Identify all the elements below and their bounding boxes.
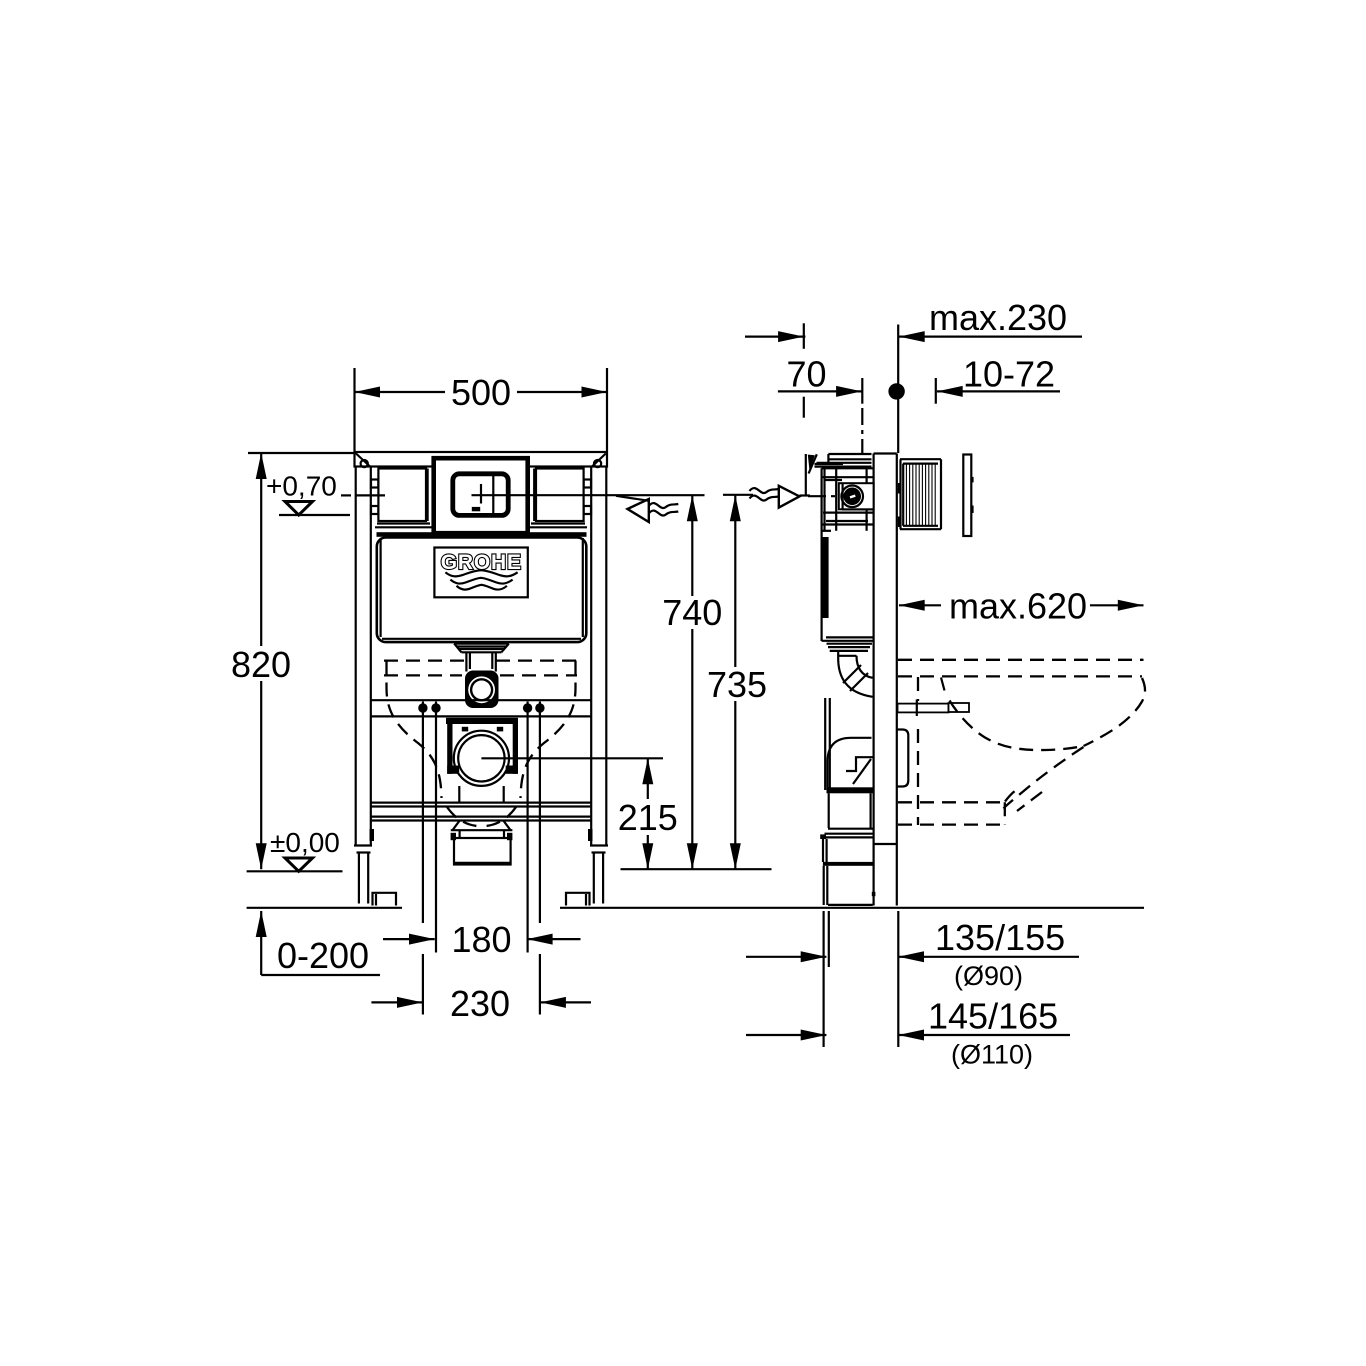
svg-text:+0,70: +0,70 <box>266 471 337 502</box>
svg-text:70: 70 <box>786 354 826 395</box>
svg-text:max.230: max.230 <box>929 297 1067 338</box>
svg-text:735: 735 <box>707 664 767 705</box>
svg-text:215: 215 <box>618 797 678 838</box>
svg-text:max.620: max.620 <box>949 585 1087 626</box>
svg-text:230: 230 <box>450 983 510 1024</box>
svg-text:(Ø90): (Ø90) <box>954 961 1023 991</box>
svg-text:0-200: 0-200 <box>277 935 369 976</box>
svg-text:180: 180 <box>451 919 511 960</box>
svg-text:135/155: 135/155 <box>935 917 1065 958</box>
svg-text:500: 500 <box>451 372 511 413</box>
svg-text:820: 820 <box>231 644 291 685</box>
svg-text:740: 740 <box>662 592 722 633</box>
svg-text:±0,00: ±0,00 <box>270 827 340 858</box>
svg-text:145/165: 145/165 <box>928 996 1058 1037</box>
svg-text:(Ø110): (Ø110) <box>951 1040 1033 1070</box>
svg-text:10-72: 10-72 <box>963 354 1055 395</box>
